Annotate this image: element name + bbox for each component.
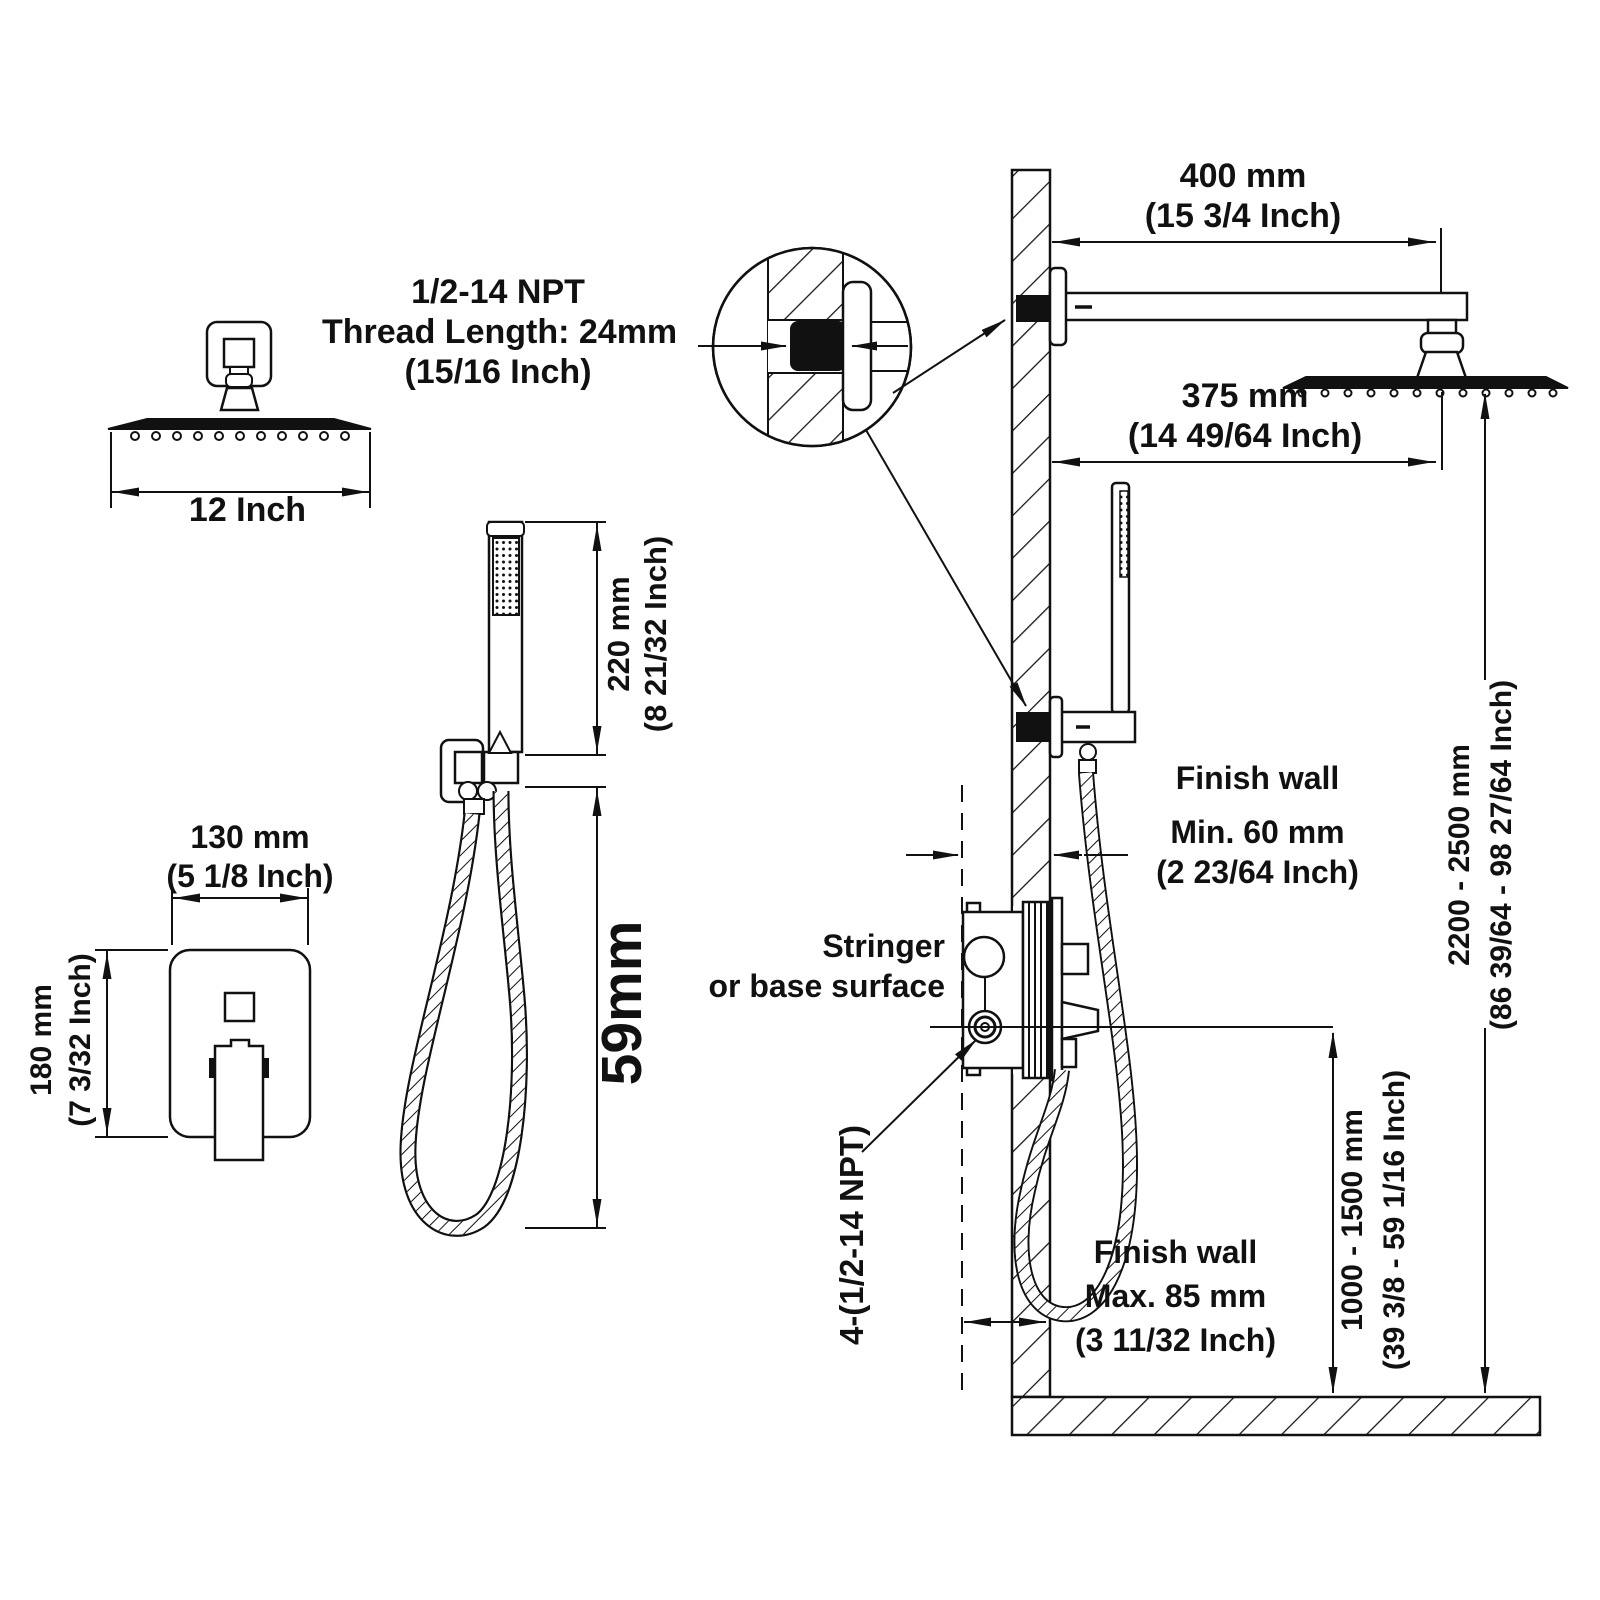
stringer-note-line2: or base surface bbox=[645, 966, 945, 1006]
shower-arm bbox=[1016, 268, 1467, 345]
thread-note-label: 1/2-14 NPT Thread Length: 24mm (15/16 In… bbox=[322, 272, 674, 392]
dim-wand-height-inch: (8 21/32 Inch) bbox=[637, 536, 674, 732]
handheld-shower-view bbox=[408, 522, 606, 1228]
finish-wall-min-mm: Min. 60 mm bbox=[1145, 812, 1370, 852]
rough-in-valve bbox=[963, 898, 1098, 1080]
npt-leader bbox=[862, 1040, 976, 1152]
installation-diagram: 400 mm (15 3/4 Inch) 375 mm (14 49/64 In… bbox=[0, 0, 1600, 1600]
dim-head-width-label: 12 Inch bbox=[160, 490, 335, 530]
dim-valve-height-range-inch: (39 3/8 - 59 1/16 Inch) bbox=[1374, 1070, 1416, 1370]
finish-wall-min-inch: (2 23/64 Inch) bbox=[1145, 852, 1370, 892]
arm-thread-block bbox=[1016, 295, 1050, 322]
valve-handle-stub bbox=[1062, 944, 1088, 974]
valve-top-port bbox=[964, 937, 1004, 977]
dim-valve-height-label: 180 mm (7 3/32 Inch) bbox=[22, 953, 100, 1126]
holder-thread-block bbox=[1016, 712, 1050, 742]
dim-head-offset-mm: 375 mm bbox=[1095, 376, 1395, 416]
detail-leader-holder bbox=[866, 430, 1026, 706]
thread-note-line2: Thread Length: 24mm bbox=[322, 312, 674, 352]
finish-wall-max-label: Finish wall Max. 85 mm (3 11/32 Inch) bbox=[1058, 1230, 1293, 1362]
dim-head-offset-inch: (14 49/64 Inch) bbox=[1095, 416, 1395, 456]
dim-valve-height-range-mm: 1000 - 1500 mm bbox=[1332, 1070, 1374, 1370]
dim-arm-length-label: 400 mm (15 3/4 Inch) bbox=[1093, 156, 1393, 236]
dim-hose-label: 59mm bbox=[603, 921, 641, 1086]
stringer-note-label: Stringer or base surface bbox=[645, 926, 945, 1006]
dim-head-height-range-mm: 2200 - 2500 mm bbox=[1439, 680, 1481, 1030]
npt-ports-text: 4-(1/2-14 NPT) bbox=[833, 1125, 871, 1345]
stringer-note-line1: Stringer bbox=[645, 926, 945, 966]
thread-note-line3: (15/16 Inch) bbox=[322, 352, 674, 392]
dim-head-width-inch: 12 Inch bbox=[189, 491, 306, 529]
finish-wall-min-title: Finish wall bbox=[1145, 758, 1370, 798]
dim-wand-height-lines bbox=[525, 522, 606, 755]
finish-wall-max-mm: Max. 85 mm bbox=[1058, 1274, 1293, 1318]
npt-ports-label: 4-(1/2-14 NPT) bbox=[833, 1125, 871, 1345]
diverter-button bbox=[225, 993, 254, 1021]
valve-trim-view bbox=[95, 888, 310, 1160]
dim-valve-height-lines bbox=[95, 950, 168, 1137]
dim-valve-height-range-label: 1000 - 1500 mm (39 3/8 - 59 1/16 Inch) bbox=[1332, 1070, 1416, 1370]
finish-wall-max-title: Finish wall bbox=[1058, 1230, 1293, 1274]
dim-wand-height-label: 220 mm (8 21/32 Inch) bbox=[600, 536, 674, 732]
dim-valve-height-inch: (7 3/32 Inch) bbox=[61, 953, 100, 1126]
dim-valve-width-label: 130 mm (5 1/8 Inch) bbox=[100, 818, 400, 896]
thread-note-line1: 1/2-14 NPT bbox=[322, 272, 674, 312]
dim-valve-width-mm: 130 mm bbox=[100, 818, 400, 857]
dim-valve-width-inch: (5 1/8 Inch) bbox=[100, 857, 400, 896]
thread-detail-circle bbox=[698, 240, 1026, 706]
valve-lever bbox=[215, 1040, 263, 1160]
dim-valve-width-lines bbox=[172, 888, 308, 945]
dim-head-offset-label: 375 mm (14 49/64 Inch) bbox=[1095, 376, 1395, 456]
dim-arm-length-mm: 400 mm bbox=[1093, 156, 1393, 196]
detail-thread-block bbox=[790, 321, 846, 371]
dim-wand-height-mm: 220 mm bbox=[600, 536, 637, 732]
dim-head-height-range-inch: (86 39/64 - 98 27/64 Inch) bbox=[1481, 680, 1523, 1030]
finish-wall-max-inch: (3 11/32 Inch) bbox=[1058, 1318, 1293, 1362]
dim-hose-mm: 59mm bbox=[603, 921, 641, 1086]
dim-valve-height-mm: 180 mm bbox=[22, 953, 61, 1126]
dim-head-height-range-label: 2200 - 2500 mm (86 39/64 - 98 27/64 Inch… bbox=[1439, 680, 1523, 1030]
hose-loop bbox=[408, 791, 520, 1228]
dim-arm-length-inch: (15 3/4 Inch) bbox=[1093, 196, 1393, 236]
finish-wall-min-label: Finish wall Min. 60 mm (2 23/64 Inch) bbox=[1145, 758, 1370, 892]
dim-arm-length-lines bbox=[1052, 228, 1441, 292]
floor bbox=[1012, 1397, 1540, 1435]
